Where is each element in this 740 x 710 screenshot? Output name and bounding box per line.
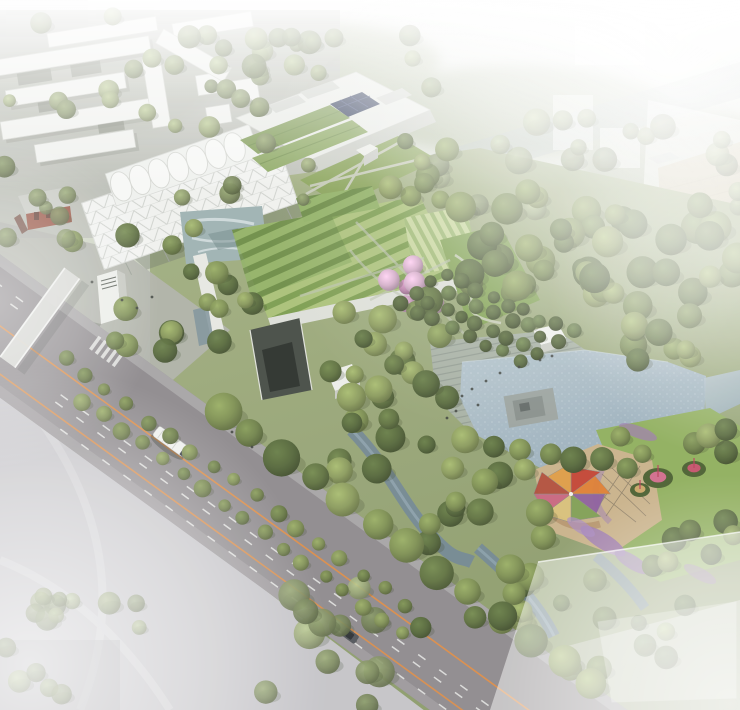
- aerial-render: [0, 0, 740, 710]
- fog: [0, 0, 740, 710]
